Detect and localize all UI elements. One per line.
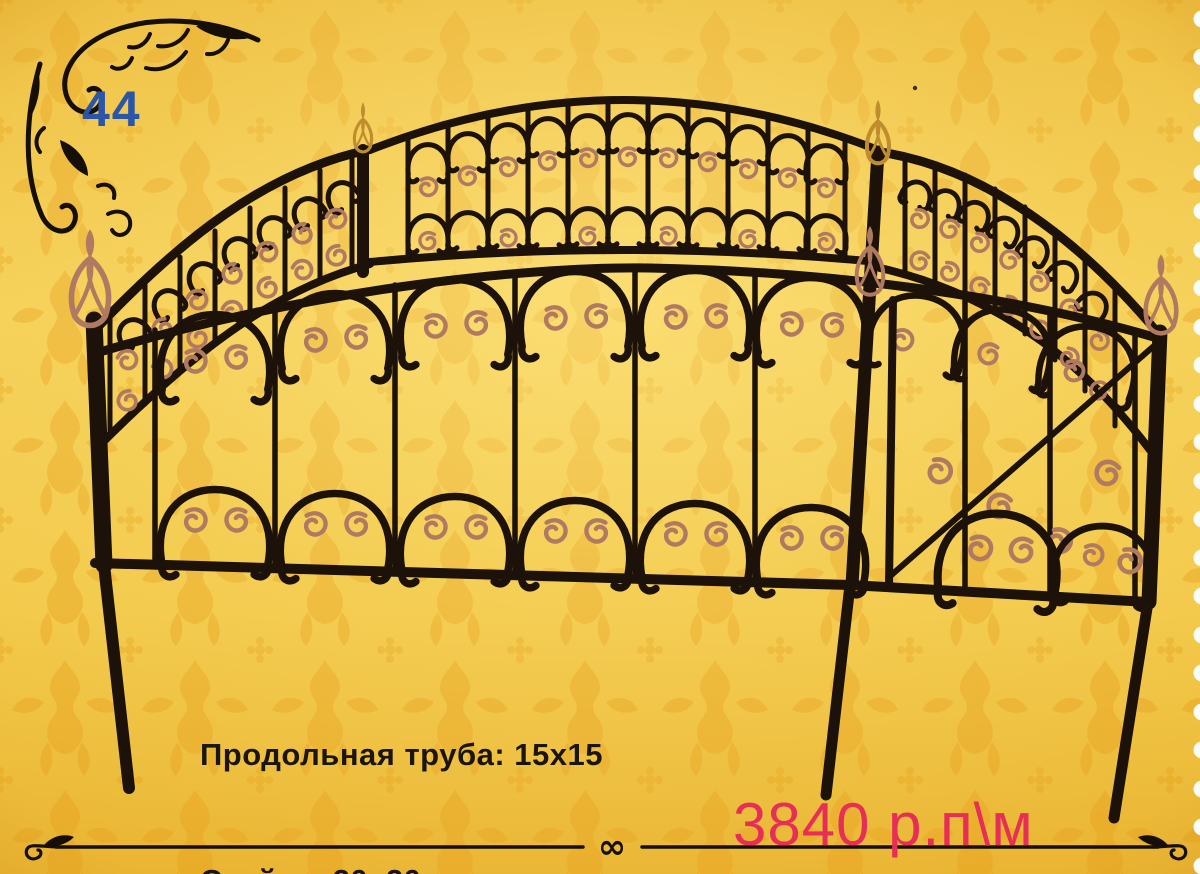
specs-block: Продольная труба: 15х15 Стойки: 20х20 Уз…	[200, 650, 674, 874]
price-label: 3840 р.п\м	[733, 790, 1034, 859]
catalog-page: ∞ 44 Продольная труба: 15х15 Стойки: 20х…	[0, 0, 1200, 874]
spec-line-tube: Продольная труба: 15х15	[200, 734, 674, 776]
spec-line-posts: Стойки: 20х20	[200, 860, 674, 874]
perforated-edge-icon	[1194, 11, 1200, 874]
item-number: 44	[82, 80, 202, 138]
fence-center-panel	[370, 100, 878, 262]
print-speck	[913, 86, 917, 90]
